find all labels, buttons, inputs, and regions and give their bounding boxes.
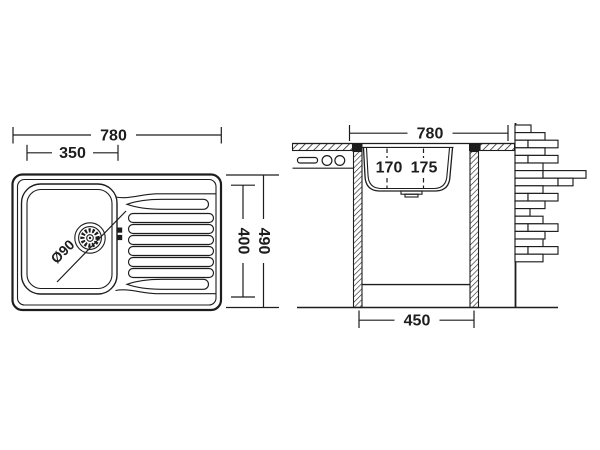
brick — [515, 163, 543, 171]
brick — [515, 155, 528, 163]
brick — [528, 193, 558, 201]
dim-top-width-label: 780 — [100, 128, 127, 145]
dim-depth-left-label: 170 — [376, 160, 403, 177]
brick — [515, 216, 543, 224]
brick — [528, 140, 558, 148]
dim-section-width-label: 780 — [417, 126, 444, 143]
brick — [515, 209, 530, 217]
countertop-wall-cap-left — [352, 143, 363, 152]
brick — [515, 125, 531, 133]
brick — [515, 224, 528, 232]
brick — [515, 193, 528, 201]
cabinet-wall-right — [470, 152, 479, 308]
brick — [515, 239, 543, 247]
countertop-hatch-right — [480, 144, 515, 151]
dim-depth-right-label: 175 — [411, 160, 438, 177]
brick — [528, 224, 558, 232]
brick — [515, 231, 545, 239]
dim-bowl-width-label: 350 — [59, 145, 86, 162]
brick — [543, 171, 586, 179]
brick — [515, 148, 545, 156]
brick — [515, 140, 528, 148]
dim-cabinet-width-label: 450 — [404, 313, 431, 330]
dim-bowl-depth-label: 400 — [235, 228, 252, 255]
brick — [515, 254, 543, 262]
cabinet-wall-left — [354, 152, 363, 308]
brick — [528, 247, 558, 255]
brick — [515, 201, 545, 209]
brick — [515, 178, 558, 186]
countertop-hatch-left — [293, 144, 353, 151]
brick — [515, 133, 545, 141]
brick — [515, 186, 543, 194]
brick — [528, 155, 558, 163]
sink-technical-drawing: Ø90 780 350 490 — [0, 0, 600, 450]
countertop-wall-cap-right — [469, 143, 481, 151]
background — [0, 0, 600, 450]
brick — [515, 247, 528, 255]
dim-total-depth-label: 490 — [255, 228, 272, 255]
drawing-canvas: Ø90 780 350 490 — [0, 0, 600, 450]
brick — [558, 178, 573, 186]
brick — [515, 171, 543, 179]
